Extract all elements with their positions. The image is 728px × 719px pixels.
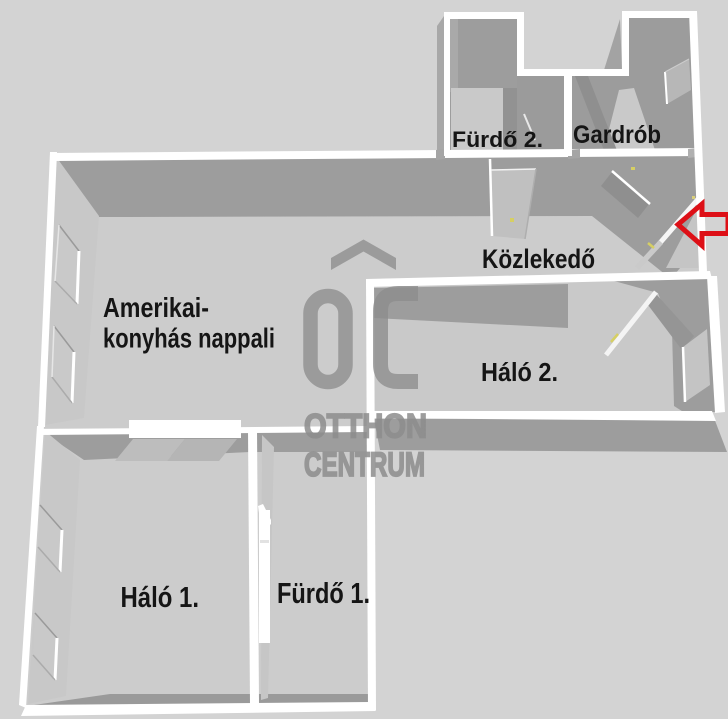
svg-text:Közlekedő: Közlekedő bbox=[482, 244, 595, 274]
svg-text:Gardrób: Gardrób bbox=[573, 121, 661, 149]
svg-text:Háló 1.: Háló 1. bbox=[121, 582, 200, 614]
svg-text:Háló 2.: Háló 2. bbox=[481, 359, 558, 387]
svg-text:konyhás nappali: konyhás nappali bbox=[103, 323, 275, 354]
svg-text:OTTHON: OTTHON bbox=[304, 408, 427, 446]
svg-text:Fürdő 2.: Fürdő 2. bbox=[452, 127, 543, 152]
svg-text:Fürdő 1.: Fürdő 1. bbox=[277, 578, 370, 610]
svg-text:CENTRUM: CENTRUM bbox=[304, 446, 425, 484]
svg-text:Amerikai-: Amerikai- bbox=[103, 292, 209, 323]
